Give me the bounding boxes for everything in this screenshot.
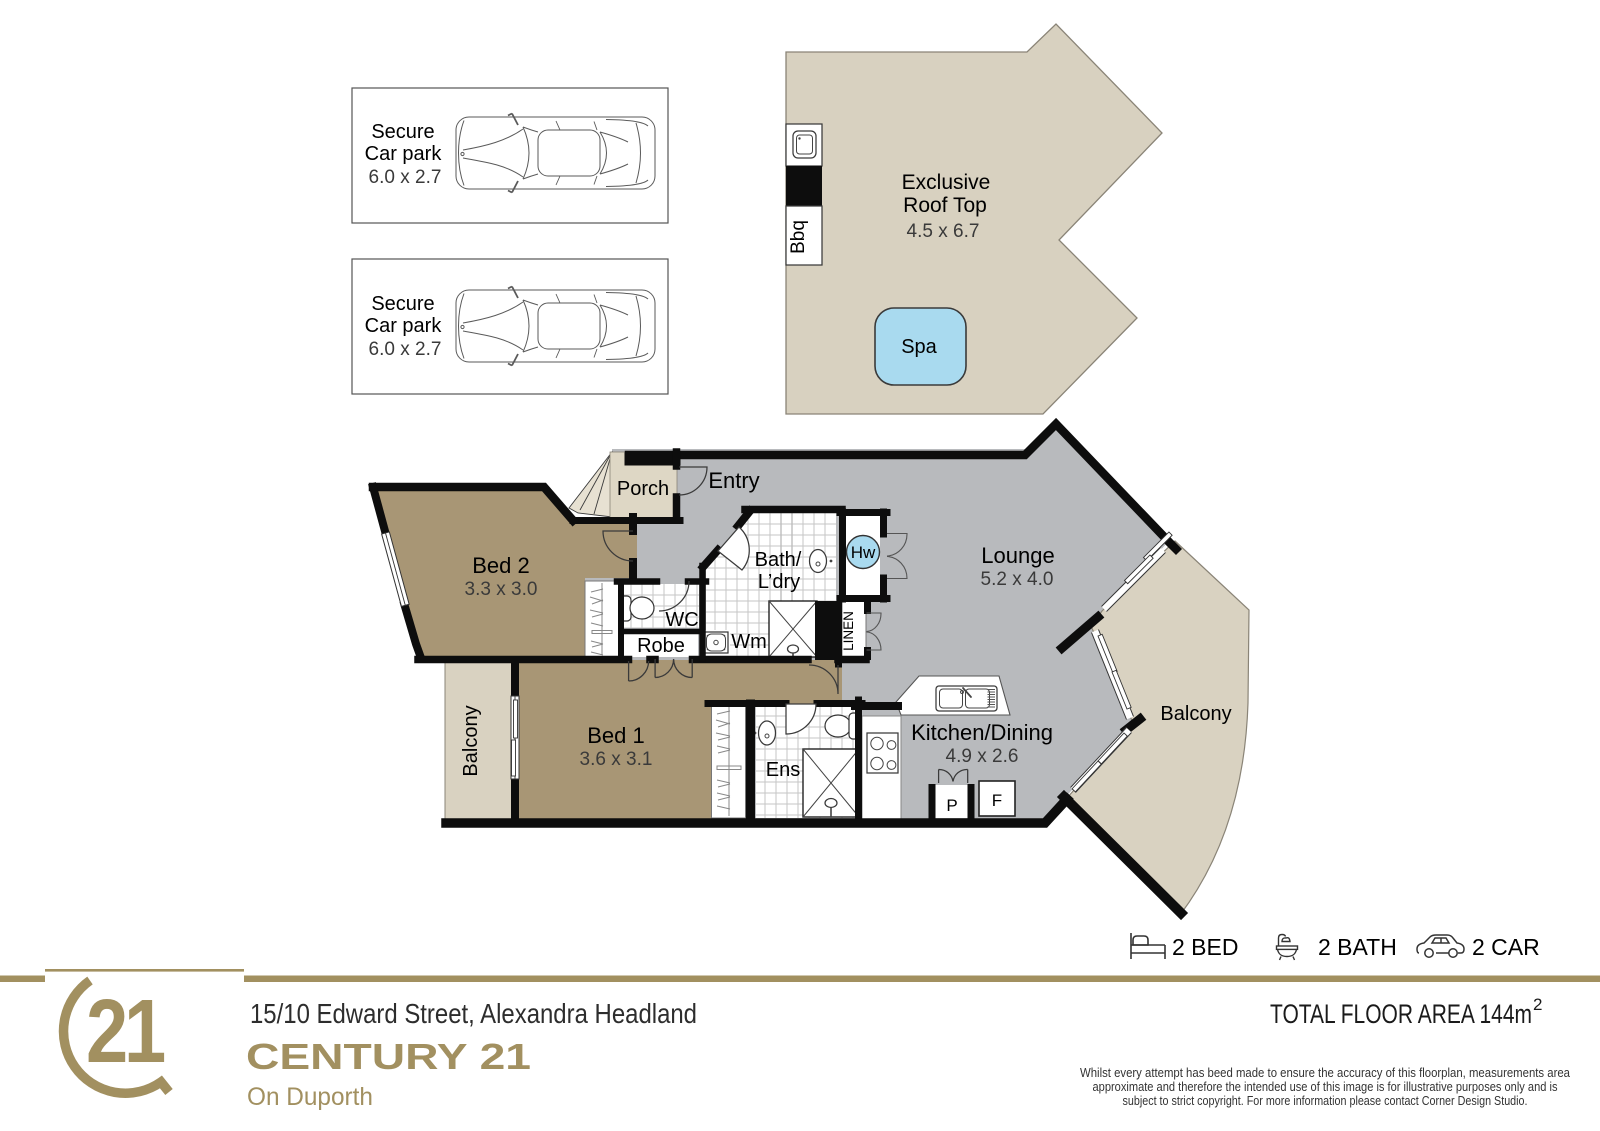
svg-text:P: P	[946, 796, 957, 815]
svg-text:F: F	[992, 791, 1002, 810]
svg-text:Porch: Porch	[617, 478, 669, 500]
svg-text:subject to strict copyright. F: subject to strict copyright. For more in…	[1123, 1093, 1528, 1108]
svg-text:3.6 x 3.1: 3.6 x 3.1	[580, 749, 653, 770]
svg-text:Whilst every attempt has beed: Whilst every attempt has beed made to en…	[1080, 1065, 1571, 1080]
svg-text:TOTAL FLOOR AREA 144m: TOTAL FLOOR AREA 144m	[1270, 999, 1532, 1029]
svg-text:Roof Top: Roof Top	[903, 194, 987, 217]
svg-text:Car park: Car park	[365, 315, 443, 337]
svg-text:L’dry: L’dry	[758, 571, 800, 593]
svg-text:On Duporth: On Duporth	[247, 1083, 373, 1111]
svg-text:WC: WC	[665, 609, 698, 631]
svg-text:15/10 Edward Street, Alexandra: 15/10 Edward Street, Alexandra Headland	[250, 998, 697, 1029]
svg-text:Car park: Car park	[365, 143, 443, 165]
svg-text:4.5 x 6.7: 4.5 x 6.7	[907, 221, 980, 242]
svg-text:2 BED: 2 BED	[1172, 934, 1238, 960]
svg-text:Bed 1: Bed 1	[587, 723, 645, 748]
svg-text:LINEN: LINEN	[841, 611, 856, 651]
svg-text:Secure: Secure	[371, 121, 434, 143]
svg-text:3.3 x 3.0: 3.3 x 3.0	[465, 579, 538, 600]
svg-text:6.0 x 2.7: 6.0 x 2.7	[369, 167, 442, 188]
svg-text:Bbq: Bbq	[788, 220, 809, 254]
svg-text:6.0 x 2.7: 6.0 x 2.7	[369, 339, 442, 360]
svg-text:Secure: Secure	[371, 293, 434, 315]
svg-text:Ens: Ens	[766, 759, 800, 781]
svg-text:approximate and therefore the: approximate and therefore the intended u…	[1093, 1079, 1558, 1094]
svg-text:2 BATH: 2 BATH	[1318, 934, 1397, 960]
svg-text:CENTURY 21: CENTURY 21	[246, 1036, 531, 1077]
svg-text:5.2 x 4.0: 5.2 x 4.0	[981, 569, 1054, 590]
svg-text:Bed 2: Bed 2	[472, 553, 530, 578]
svg-text:Wm: Wm	[731, 631, 767, 653]
svg-text:Hw: Hw	[851, 543, 876, 562]
svg-text:Balcony: Balcony	[460, 705, 482, 776]
svg-text:2: 2	[1533, 995, 1542, 1014]
svg-text:2 CAR: 2 CAR	[1472, 934, 1540, 960]
svg-text:21: 21	[86, 982, 164, 1082]
svg-text:Exclusive: Exclusive	[902, 171, 991, 194]
svg-text:4.9 x 2.6: 4.9 x 2.6	[946, 746, 1019, 767]
svg-text:Balcony: Balcony	[1160, 703, 1231, 725]
svg-text:Spa: Spa	[901, 336, 937, 358]
svg-text:Entry: Entry	[708, 468, 759, 493]
svg-text:Kitchen/Dining: Kitchen/Dining	[911, 720, 1053, 745]
svg-text:Robe: Robe	[637, 635, 685, 657]
svg-text:Lounge: Lounge	[981, 543, 1054, 568]
svg-text:Bath/: Bath/	[755, 549, 802, 571]
